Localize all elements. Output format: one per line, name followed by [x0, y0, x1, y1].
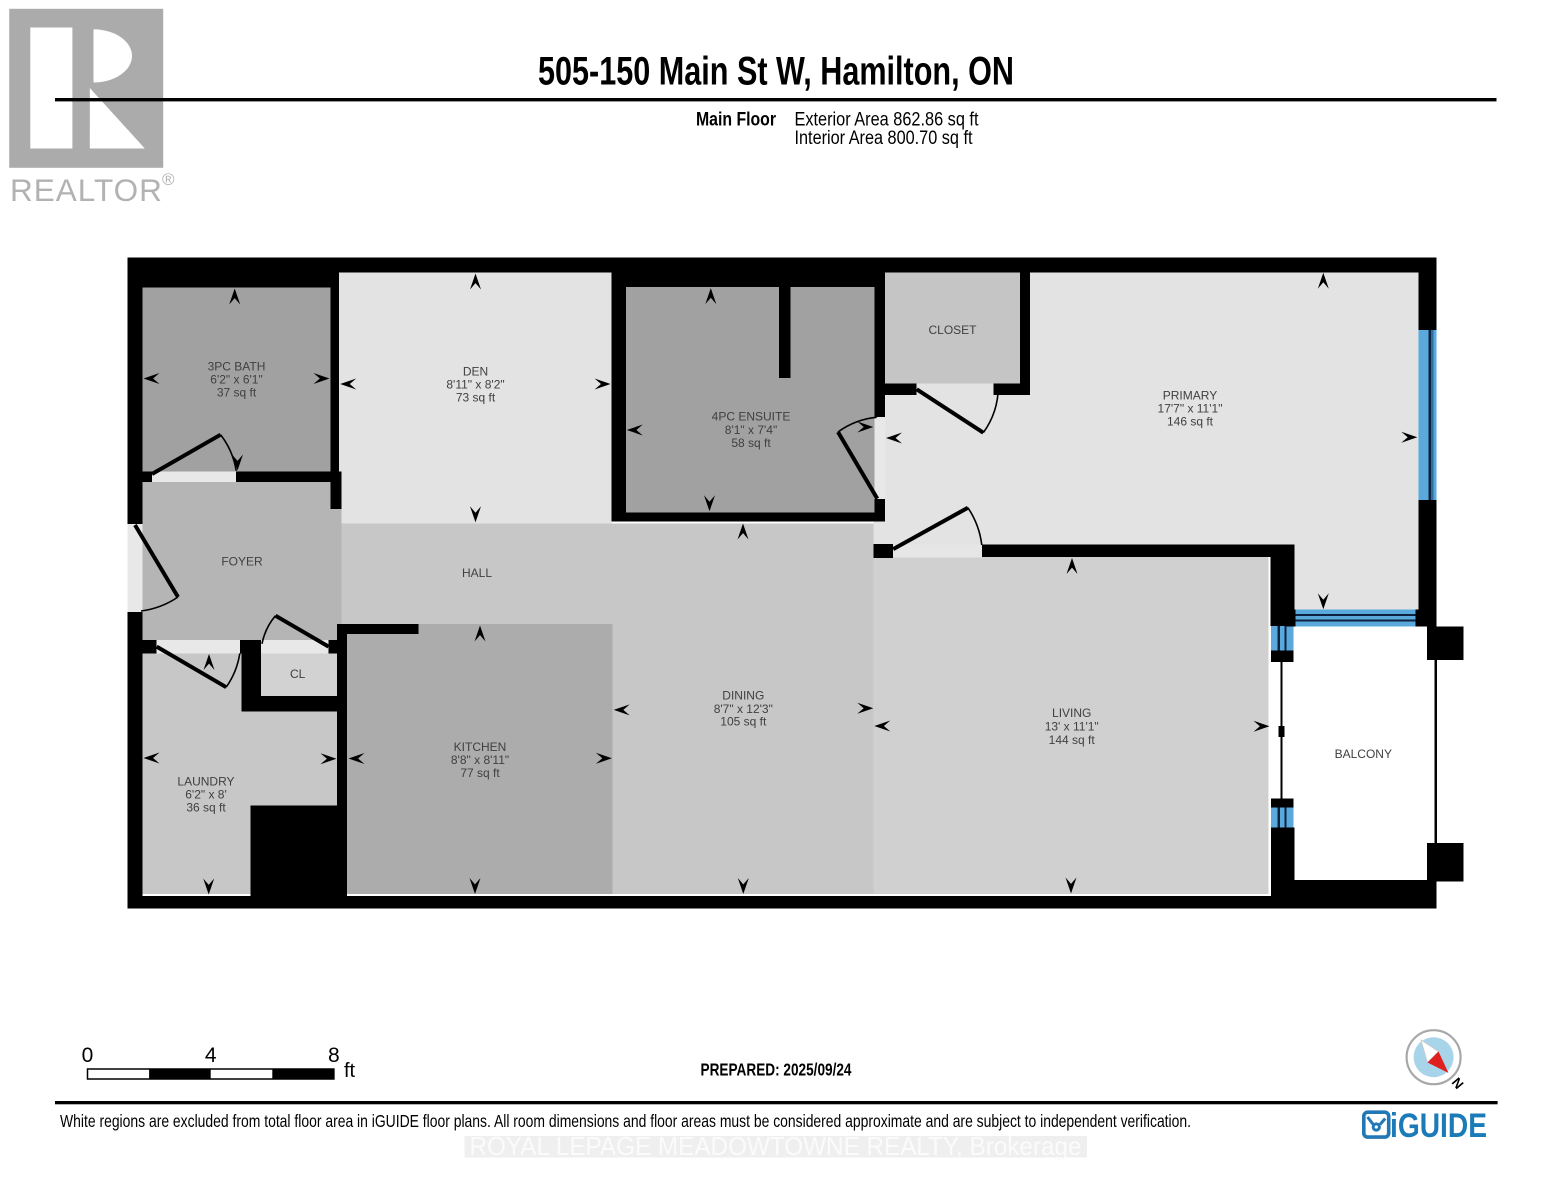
svg-text:6'2" x 8': 6'2" x 8'	[185, 788, 227, 802]
svg-text:8'1" x 7'4": 8'1" x 7'4"	[725, 423, 777, 437]
svg-text:BALCONY: BALCONY	[1335, 747, 1392, 761]
svg-text:505-150 Main St W, Hamilton, O: 505-150 Main St W, Hamilton, ON	[538, 50, 1014, 94]
svg-text:HALL: HALL	[462, 566, 492, 580]
svg-text:Main Floor: Main Floor	[696, 109, 776, 130]
svg-text:FOYER: FOYER	[221, 555, 263, 569]
svg-text:8'8" x 8'11": 8'8" x 8'11"	[451, 753, 509, 767]
svg-text:PREPARED: 2025/09/24: PREPARED: 2025/09/24	[701, 1059, 852, 1079]
svg-text:Interior Area 800.70 sq ft: Interior Area 800.70 sq ft	[795, 128, 974, 149]
svg-text:CL: CL	[290, 667, 306, 681]
svg-text:White regions are excluded fro: White regions are excluded from total fl…	[60, 1111, 1191, 1131]
svg-text:6'2" x 6'1": 6'2" x 6'1"	[210, 372, 262, 386]
svg-text:13' x 11'1": 13' x 11'1"	[1045, 720, 1099, 734]
svg-text:ROYAL LEPAGE MEADOWTOWNE REALT: ROYAL LEPAGE MEADOWTOWNE REALTY, Brokera…	[470, 1131, 1082, 1161]
svg-text:DINING: DINING	[722, 689, 764, 703]
svg-text:17'7" x 11'1": 17'7" x 11'1"	[1158, 402, 1223, 416]
svg-text:LIVING: LIVING	[1052, 706, 1091, 720]
svg-text:0: 0	[82, 1044, 94, 1067]
svg-text:36 sq ft: 36 sq ft	[186, 801, 226, 815]
svg-text:iGUIDE: iGUIDE	[1390, 1107, 1487, 1145]
svg-text:LAUNDRY: LAUNDRY	[177, 775, 234, 789]
svg-text:REALTOR: REALTOR	[10, 172, 163, 208]
svg-text:3PC BATH: 3PC BATH	[208, 359, 266, 373]
svg-text:73 sq ft: 73 sq ft	[456, 391, 496, 405]
svg-text:CLOSET: CLOSET	[928, 323, 977, 337]
svg-text:58 sq ft: 58 sq ft	[731, 436, 771, 450]
svg-text:8'11" x 8'2": 8'11" x 8'2"	[446, 378, 504, 392]
svg-text:144 sq ft: 144 sq ft	[1049, 733, 1096, 747]
svg-text:KITCHEN: KITCHEN	[454, 740, 507, 754]
svg-text:37 sq ft: 37 sq ft	[217, 385, 257, 399]
svg-text:8: 8	[328, 1044, 340, 1067]
svg-text:®: ®	[162, 170, 175, 189]
svg-text:77 sq ft: 77 sq ft	[460, 766, 500, 780]
svg-text:4PC ENSUITE: 4PC ENSUITE	[712, 409, 791, 423]
svg-text:DEN: DEN	[463, 365, 488, 379]
svg-text:4: 4	[205, 1044, 217, 1067]
svg-text:105 sq ft: 105 sq ft	[720, 715, 767, 729]
svg-text:PRIMARY: PRIMARY	[1163, 389, 1217, 403]
svg-text:146 sq ft: 146 sq ft	[1167, 415, 1214, 429]
svg-text:ft: ft	[344, 1060, 356, 1082]
